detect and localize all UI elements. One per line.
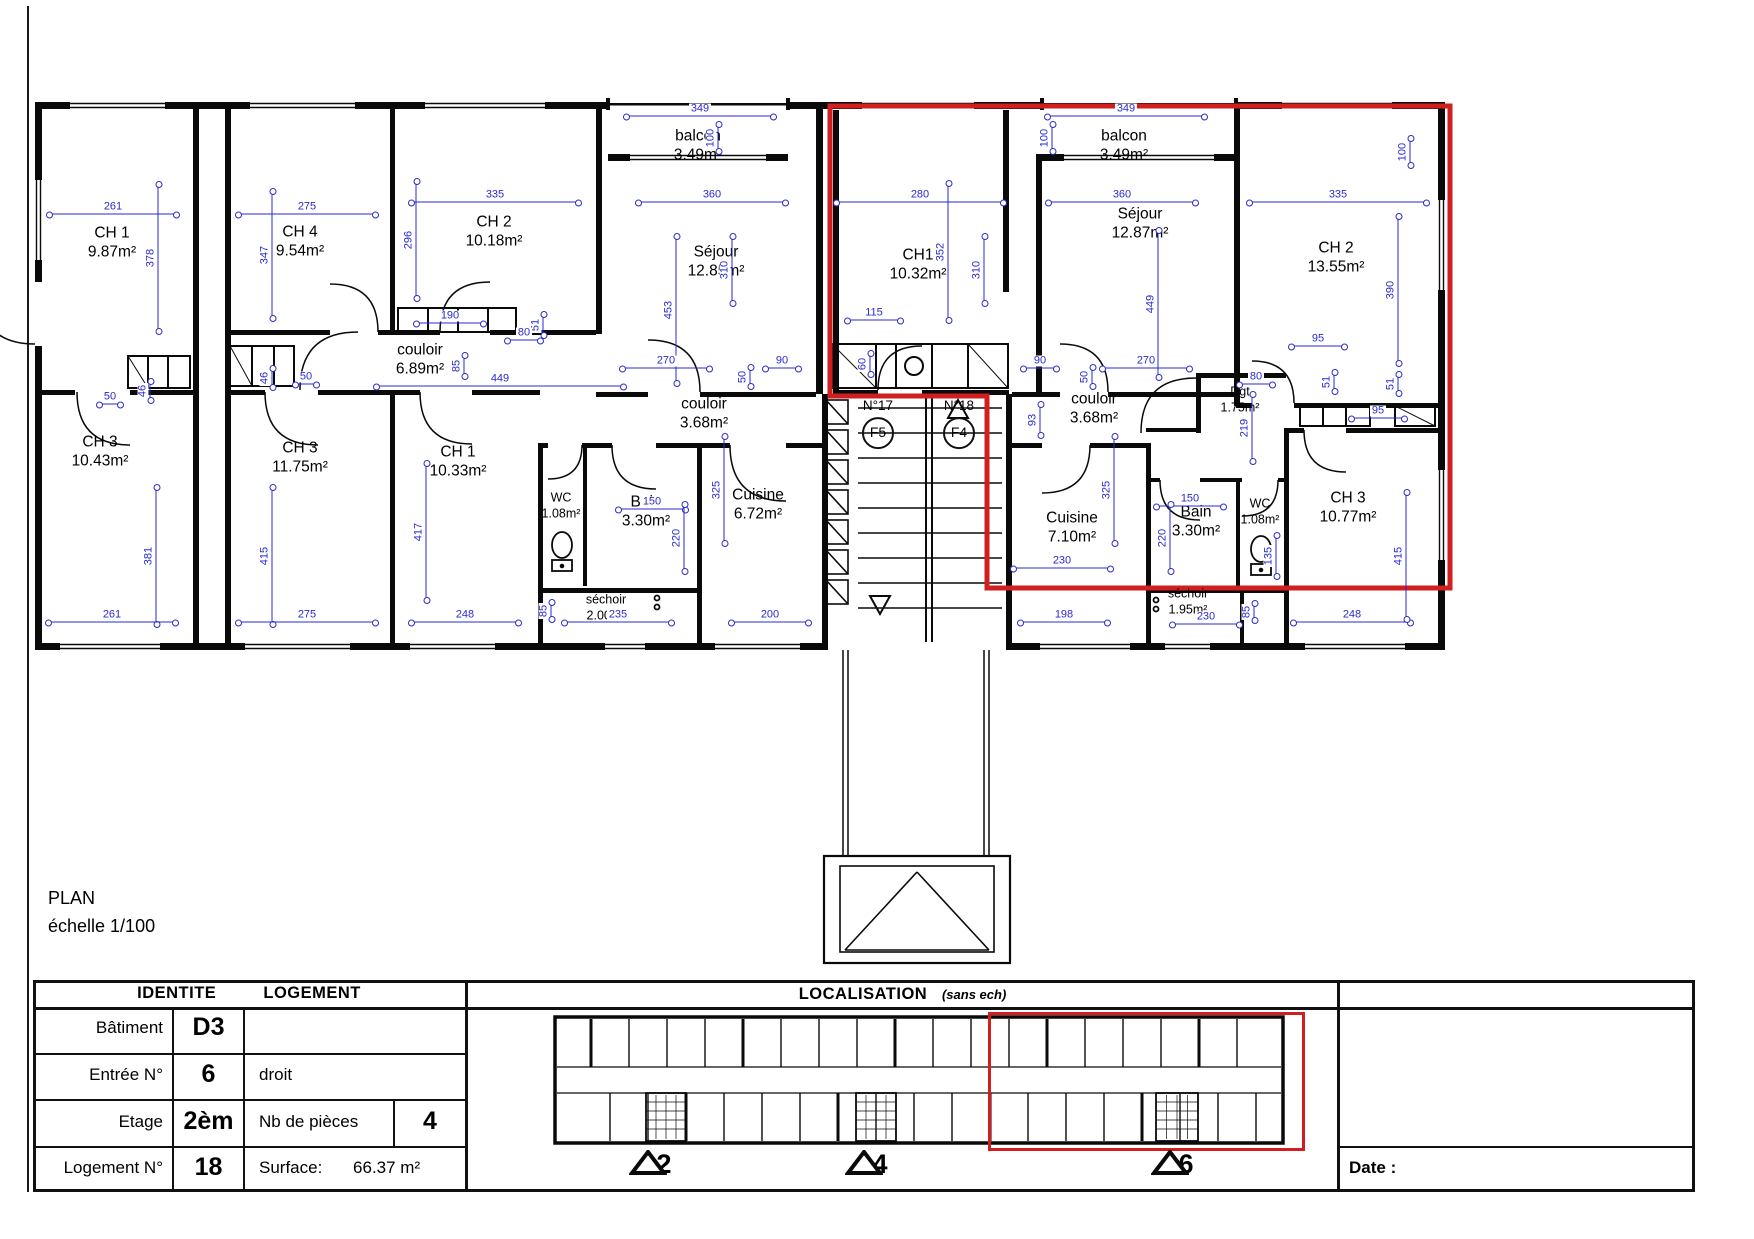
door-arcs: [0, 282, 1346, 520]
room-label: CH 49.54m²: [276, 223, 324, 262]
surface-value: 66.37 m²: [353, 1158, 420, 1177]
identite-header: IDENTITE LOGEMENT: [33, 984, 465, 1003]
room-label: Cuisine6.72m²: [732, 486, 784, 525]
entrance-canopy: [824, 650, 1010, 963]
room-label: séchoir1.95m²: [1168, 586, 1208, 617]
logement-numero-value: 18: [174, 1153, 243, 1182]
localisation-header: LOCALISATION (sans ech): [468, 984, 1337, 1004]
pieces-value: 4: [395, 1107, 465, 1136]
room-label: balcon3.49m²: [674, 127, 722, 166]
entrance-marker-6: 6: [1151, 1150, 1221, 1178]
entrance-marker-2: 2: [629, 1150, 699, 1178]
room-label: WC1.08m²: [1241, 496, 1280, 527]
localisation-highlight-box: [988, 1012, 1305, 1151]
plan-scale: échelle 1/100: [48, 916, 155, 937]
room-label: Cuisine7.10m²: [1046, 509, 1098, 548]
etage-label: Etage: [33, 1112, 163, 1132]
room-label: Dgt1.75m²: [1221, 384, 1260, 415]
batiment-value: D3: [174, 1013, 243, 1042]
room-label: CH 19.87m²: [88, 224, 136, 263]
localisation-label: LOCALISATION: [799, 985, 928, 1003]
logement-numero-label: Logement N°: [33, 1158, 163, 1178]
room-label: séchoir2.00m²: [586, 592, 626, 623]
unit-label: N°17F5: [862, 399, 894, 449]
room-label: couloir3.68m²: [1070, 390, 1118, 429]
room-label: Séjour12.85m²: [688, 243, 745, 282]
room-label: CH 310.43m²: [72, 433, 129, 472]
room-label: CH 310.77m²: [1320, 489, 1377, 528]
surface-cell: Surface: 66.37 m²: [259, 1158, 465, 1178]
room-label: couloir6.89m²: [396, 341, 444, 380]
room-label: CH 210.18m²: [466, 213, 523, 252]
surface-label: Surface:: [259, 1158, 322, 1177]
room-label: CH110.32m²: [890, 246, 947, 285]
entree-extra: droit: [259, 1065, 459, 1085]
etage-value: 2èm: [174, 1107, 243, 1136]
room-label: couloir3.68m²: [680, 395, 728, 434]
date-label: Date :: [1349, 1158, 1689, 1178]
staircase: [826, 398, 1002, 642]
room-label: CH 110.33m²: [430, 443, 487, 482]
room-label: Bain3.30m²: [622, 493, 670, 532]
room-label: Bain3.30m²: [1172, 503, 1220, 542]
pieces-label: Nb de pièces: [259, 1112, 393, 1132]
logement-label: LOGEMENT: [263, 984, 361, 1002]
entree-value: 6: [174, 1060, 243, 1089]
room-label: CH 213.55m²: [1308, 239, 1365, 278]
localisation-note: (sans ech): [942, 987, 1006, 1002]
unit-label: N°18F4: [943, 399, 975, 449]
plan-title: PLAN: [48, 888, 95, 909]
walls: [35, 98, 1445, 650]
entree-label: Entrée N°: [33, 1065, 163, 1085]
room-label: Séjour12.87m²: [1112, 205, 1169, 244]
room-label: CH 311.75m²: [272, 439, 328, 478]
identite-label: IDENTITE: [137, 984, 216, 1002]
room-label: WC1.08m²: [542, 490, 581, 521]
wc-fixtures: [552, 532, 1271, 612]
batiment-label: Bâtiment: [33, 1018, 163, 1038]
room-label: balcon3.49m²: [1100, 127, 1148, 166]
entrance-marker-4: 4: [845, 1150, 915, 1178]
